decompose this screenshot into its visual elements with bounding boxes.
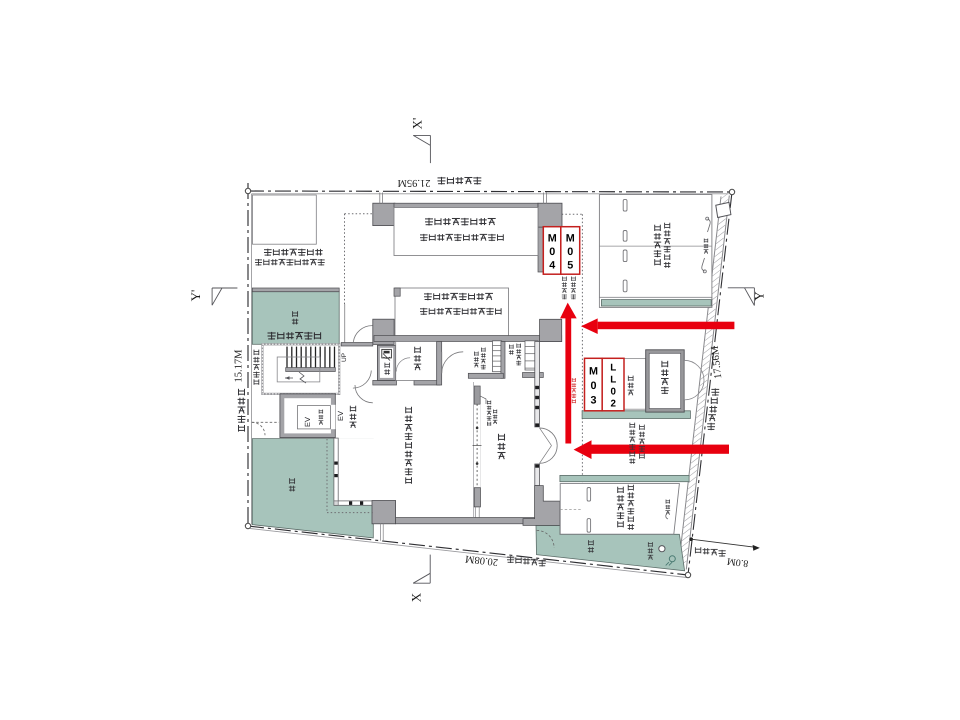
svg-text:0: 0	[610, 387, 616, 398]
svg-text:EV: EV	[336, 411, 345, 421]
svg-text:M: M	[548, 233, 557, 245]
svg-text:Y': Y'	[188, 290, 203, 302]
svg-text:0: 0	[549, 246, 555, 258]
svg-text:0: 0	[567, 246, 573, 258]
svg-text:15.17M: 15.17M	[234, 349, 245, 383]
svg-text:3: 3	[590, 395, 596, 407]
svg-text:L: L	[610, 363, 616, 374]
svg-text:X': X'	[410, 118, 425, 130]
svg-text:X: X	[409, 592, 424, 602]
svg-text:Y: Y	[752, 291, 767, 301]
svg-text:21.95M: 21.95M	[397, 177, 431, 188]
svg-text:4: 4	[549, 260, 555, 272]
svg-text:UP: UP	[341, 353, 348, 362]
svg-text:EV: EV	[303, 417, 312, 427]
svg-text:M: M	[566, 233, 575, 245]
svg-text:0: 0	[590, 380, 596, 392]
svg-text:M: M	[589, 366, 598, 378]
svg-text:2: 2	[610, 399, 616, 410]
svg-text:5: 5	[567, 260, 573, 272]
svg-text:L: L	[610, 375, 616, 386]
